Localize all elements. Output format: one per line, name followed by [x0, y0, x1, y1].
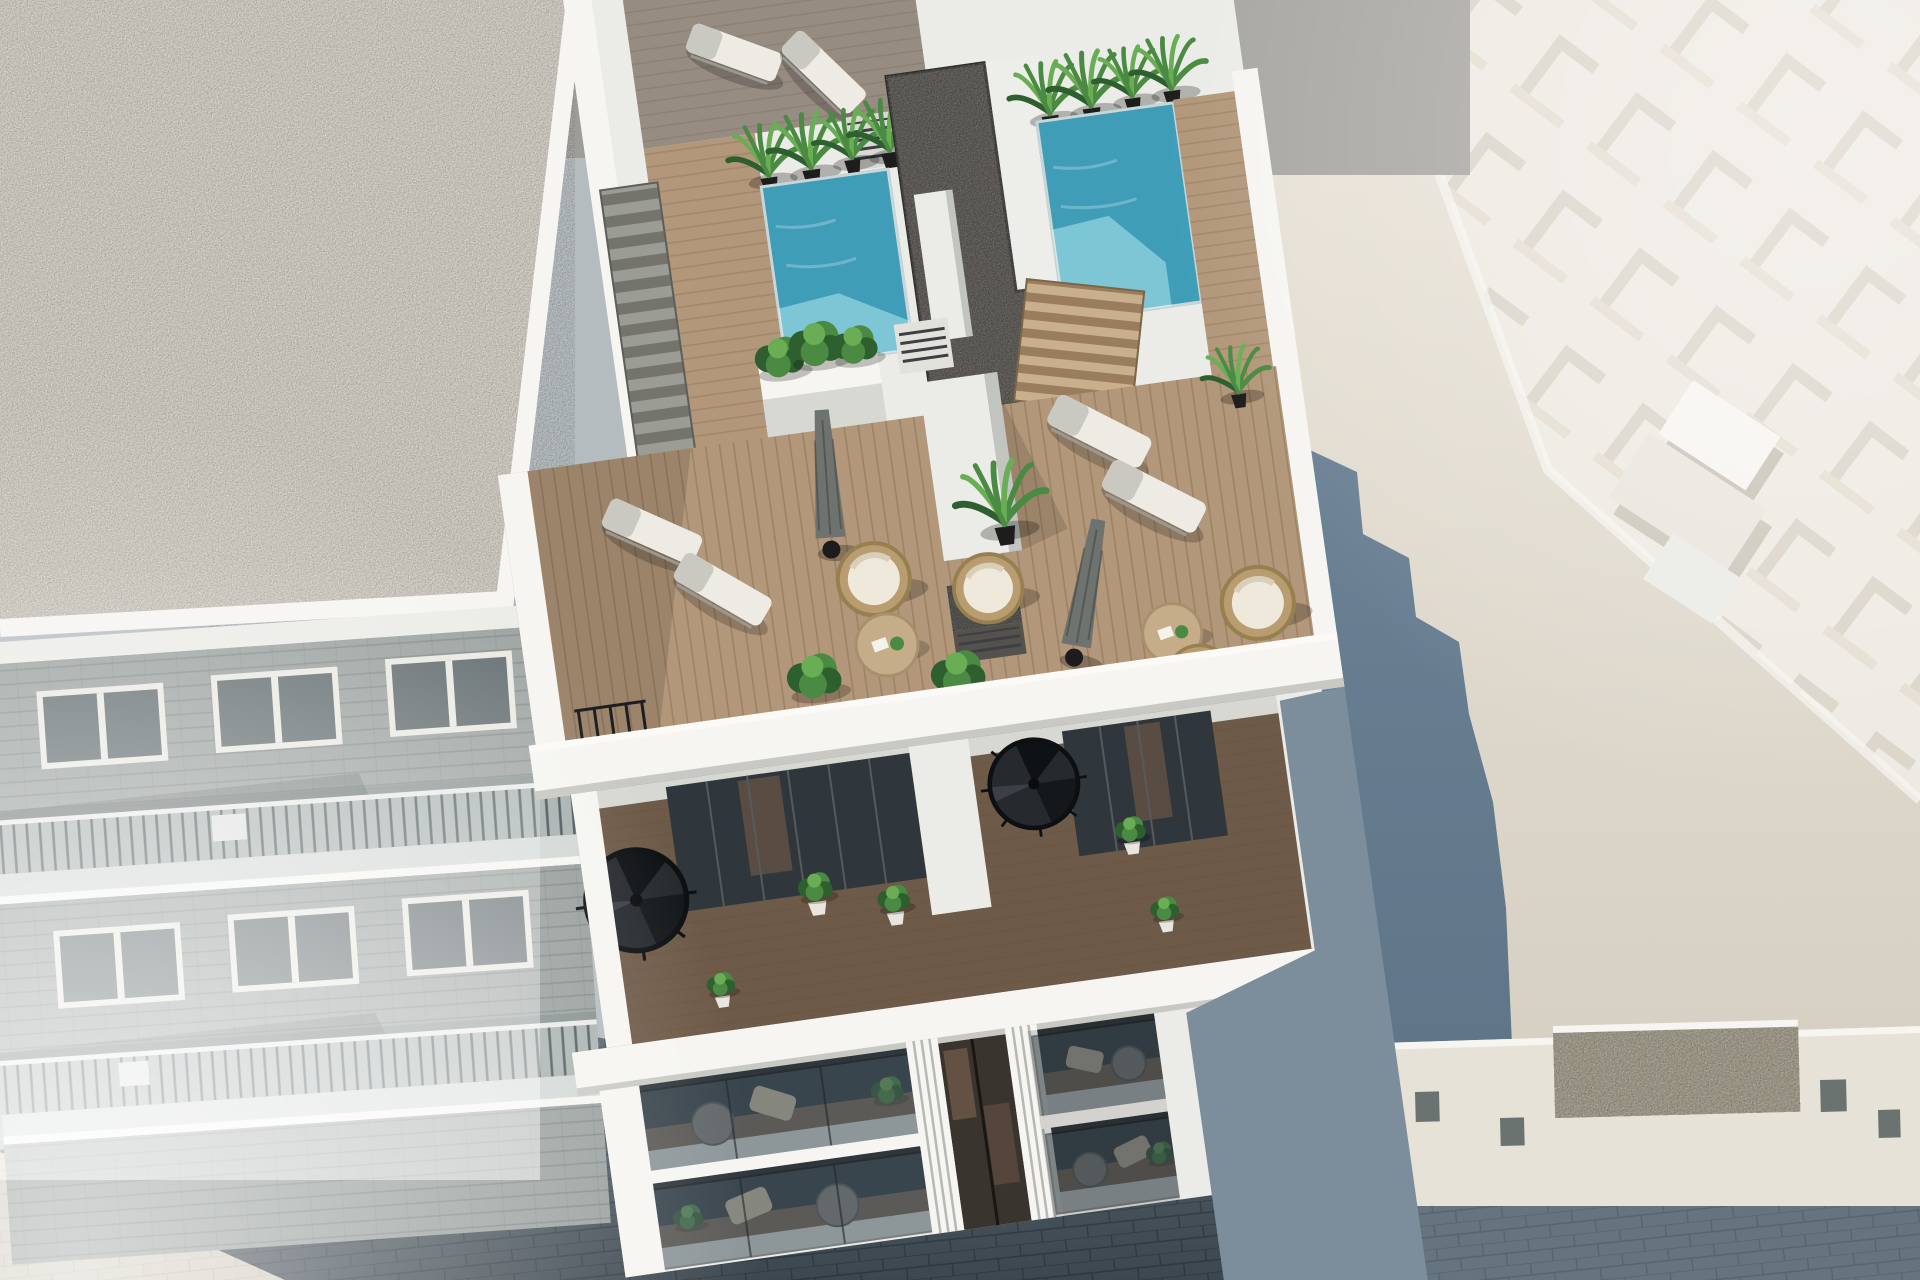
gravel-roof-strip [1553, 1020, 1800, 1118]
scene-canvas [0, 0, 1920, 1280]
sunlight-haze-top-right [1050, 0, 1920, 900]
architectural-render [0, 0, 1920, 1280]
sunlight-haze-bottom-left [0, 300, 760, 1280]
louver-vent-mid [894, 317, 954, 374]
